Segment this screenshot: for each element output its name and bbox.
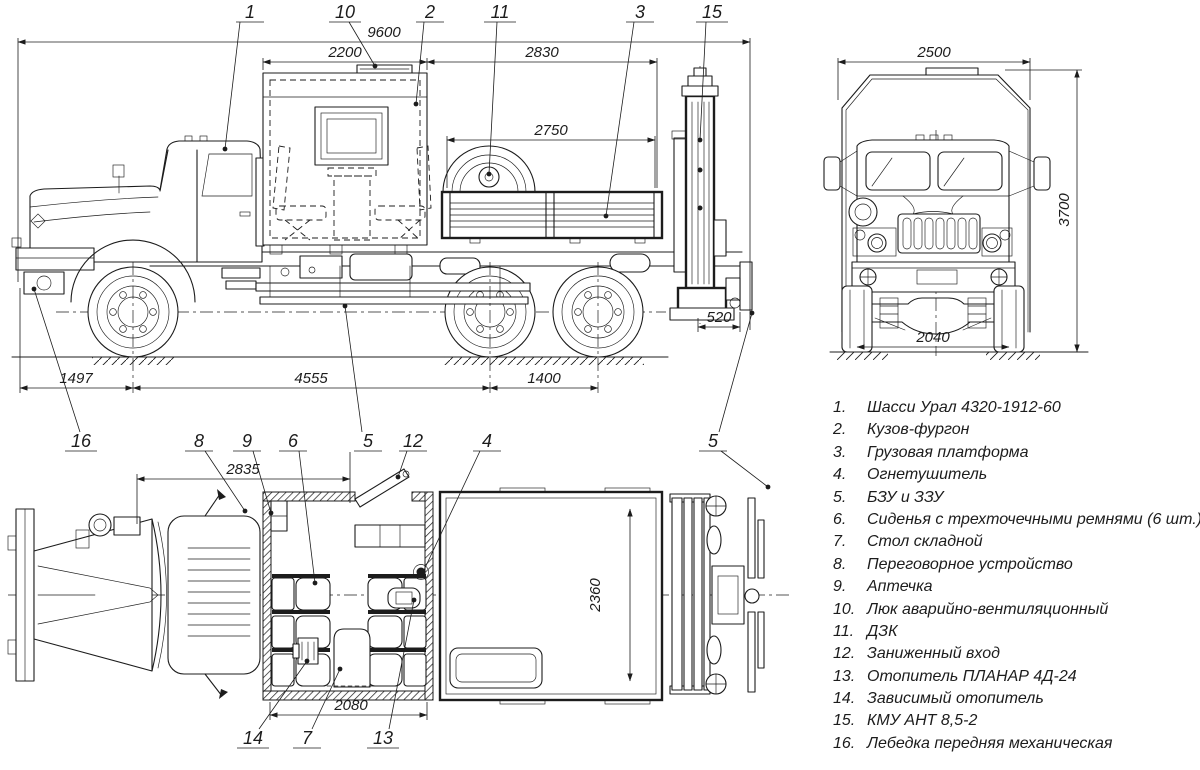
svg-text:4: 4 xyxy=(482,431,492,451)
parts-list-item: 9.Аптечка xyxy=(833,578,1199,600)
svg-text:15: 15 xyxy=(702,2,723,22)
part-name: ДЗК xyxy=(867,623,898,641)
parts-list: 1.Шасси Урал 4320-1912-60 2.Кузов-фургон… xyxy=(833,399,1199,757)
roof-hatch-front xyxy=(926,68,978,75)
part-number: 10. xyxy=(833,601,867,619)
callout-16: 16 xyxy=(32,287,97,451)
folding-table-top xyxy=(334,629,370,687)
crane-cylinder xyxy=(674,138,686,272)
svg-text:3: 3 xyxy=(635,2,645,22)
svg-text:9: 9 xyxy=(242,431,252,451)
front-winch xyxy=(24,272,64,294)
dim-track: 2040 xyxy=(915,329,950,346)
air-tank xyxy=(610,254,650,272)
part-name: Кузов-фургон xyxy=(867,421,969,439)
dim-van-body-length: 2080 xyxy=(333,697,368,714)
callout-1: 1 xyxy=(223,2,264,151)
parts-list-item: 11.ДЗК xyxy=(833,623,1199,645)
crane-mount-block xyxy=(712,566,744,624)
part-number: 3. xyxy=(833,444,867,462)
dim-cab-to-door: 2835 xyxy=(225,461,260,478)
dim-overall-height: 3700 xyxy=(1056,193,1073,227)
svg-text:5: 5 xyxy=(708,431,719,451)
parts-list-item: 3.Грузовая платформа xyxy=(833,444,1199,466)
callout-5-rear-guard: 5 xyxy=(699,311,770,490)
callout-3: 3 xyxy=(604,2,654,218)
van-body-top xyxy=(263,469,433,700)
svg-text:16: 16 xyxy=(71,431,92,451)
ground-side xyxy=(12,357,668,365)
air-cleaner-top xyxy=(89,514,111,536)
crane-column xyxy=(686,96,714,290)
svg-text:6: 6 xyxy=(288,431,299,451)
dim-overall-length: 9600 xyxy=(367,24,401,41)
cab-front xyxy=(824,135,1050,292)
cab-roof-top xyxy=(168,516,260,674)
rear-protective-device xyxy=(726,262,752,310)
parts-list-item: 13.Отопитель ПЛАНАР 4Д-24 xyxy=(833,668,1199,690)
parts-list-item: 16.Лебедка передняя механическая xyxy=(833,735,1199,757)
air-intake xyxy=(849,198,877,226)
parts-list-item: 6.Сиденья с трехточечными ремнями (6 шт.… xyxy=(833,511,1199,533)
cargo-platform-side xyxy=(442,192,662,243)
dim-bogie-spacing: 1400 xyxy=(527,370,561,387)
dim-platform-width: 2360 xyxy=(587,578,604,613)
parts-list-item: 4.Огнетушитель xyxy=(833,466,1199,488)
tow-hook xyxy=(12,238,21,247)
svg-text:10: 10 xyxy=(335,2,355,22)
parts-list-item: 14.Зависимый отопитель xyxy=(833,690,1199,712)
parts-list-item: 2.Кузов-фургон xyxy=(833,421,1199,443)
crane-top xyxy=(670,494,764,694)
parts-list-item: 8.Переговорное устройство xyxy=(833,556,1199,578)
part-name: Аптечка xyxy=(867,578,933,596)
van-body-side xyxy=(263,65,431,254)
top-view xyxy=(8,469,790,704)
part-number: 14. xyxy=(833,690,867,708)
side-view xyxy=(12,65,752,365)
dim-rear-overhang: 520 xyxy=(706,309,732,326)
dim-van-length: 2200 xyxy=(327,44,362,61)
part-number: 13. xyxy=(833,668,867,686)
parts-list-item: 10.Люк аварийно-вентиляционный xyxy=(833,601,1199,623)
part-name: Отопитель ПЛАНАР 4Д-24 xyxy=(867,668,1077,686)
part-name: Зависимый отопитель xyxy=(867,690,1044,708)
svg-text:5: 5 xyxy=(363,431,374,451)
part-name: Заниженный вход xyxy=(867,645,1000,663)
part-number: 9. xyxy=(833,578,867,596)
dim-wheelbase: 4555 xyxy=(294,370,328,387)
folding-entry-step xyxy=(355,469,409,507)
part-number: 4. xyxy=(833,466,867,484)
parts-list-item: 7.Стол складной xyxy=(833,533,1199,555)
part-name: Стол складной xyxy=(867,533,983,551)
wheel-left-front-view xyxy=(842,286,872,352)
roof-marker-light xyxy=(185,136,192,141)
technical-drawing-page: 9600 2200 2830 2750 520 1497 4555 1400 1… xyxy=(0,0,1200,770)
dim-overall-width: 2500 xyxy=(916,44,951,61)
svg-text:1: 1 xyxy=(245,2,255,22)
part-number: 11. xyxy=(833,623,867,641)
part-number: 8. xyxy=(833,556,867,574)
parts-list-item: 15.КМУ АНТ 8,5-2 xyxy=(833,712,1199,734)
platform-top xyxy=(440,488,662,704)
svg-text:8: 8 xyxy=(194,431,204,451)
part-number: 5. xyxy=(833,489,867,507)
svg-text:12: 12 xyxy=(403,431,423,451)
part-name: Огнетушитель xyxy=(867,466,987,484)
front-view xyxy=(824,68,1088,360)
dim-platform-length: 2830 xyxy=(524,44,559,61)
svg-text:14: 14 xyxy=(243,728,263,748)
part-name: Грузовая платформа xyxy=(867,444,1029,462)
part-number: 2. xyxy=(833,421,867,439)
cabinet-top xyxy=(355,525,425,547)
part-name: БЗУ и ЗЗУ xyxy=(867,489,943,507)
svg-text:13: 13 xyxy=(373,728,393,748)
part-name: Сиденья с трехточечными ремнями (6 шт.) xyxy=(867,511,1200,529)
wheel-right-front-view xyxy=(994,286,1024,352)
parts-list-item: 12.Заниженный вход xyxy=(833,645,1199,667)
part-name: Шасси Урал 4320-1912-60 xyxy=(867,399,1061,417)
part-number: 7. xyxy=(833,533,867,551)
svg-text:7: 7 xyxy=(302,728,313,748)
roof-marker-light xyxy=(200,136,207,141)
front-bumper xyxy=(852,262,1015,292)
part-number: 1. xyxy=(833,399,867,417)
part-number: 12. xyxy=(833,645,867,663)
svg-text:2: 2 xyxy=(424,2,435,22)
ground-front xyxy=(830,352,1088,360)
part-number: 6. xyxy=(833,511,867,529)
part-number: 15. xyxy=(833,712,867,730)
part-name: Переговорное устройство xyxy=(867,556,1073,574)
part-name: Люк аварийно-вентиляционный xyxy=(867,601,1108,619)
tow-hook-top xyxy=(745,589,759,603)
cab-top xyxy=(8,489,260,699)
callout-5-side-guard: 5 xyxy=(343,304,382,451)
svg-text:11: 11 xyxy=(491,2,510,22)
part-name: КМУ АНТ 8,5-2 xyxy=(867,712,977,730)
part-number: 16. xyxy=(833,735,867,753)
cab-step xyxy=(226,281,256,289)
parts-list-item: 1.Шасси Урал 4320-1912-60 xyxy=(833,399,1199,421)
parts-list-item: 5.БЗУ и ЗЗУ xyxy=(833,489,1199,511)
battery-box xyxy=(300,256,342,278)
fender-mirror-icon xyxy=(113,165,124,177)
dim-platform-inner-length: 2750 xyxy=(533,122,568,139)
cab-step xyxy=(222,268,260,278)
crane-base xyxy=(678,288,726,310)
fuel-tank xyxy=(350,254,412,280)
part-name: Лебедка передняя механическая xyxy=(867,735,1112,753)
